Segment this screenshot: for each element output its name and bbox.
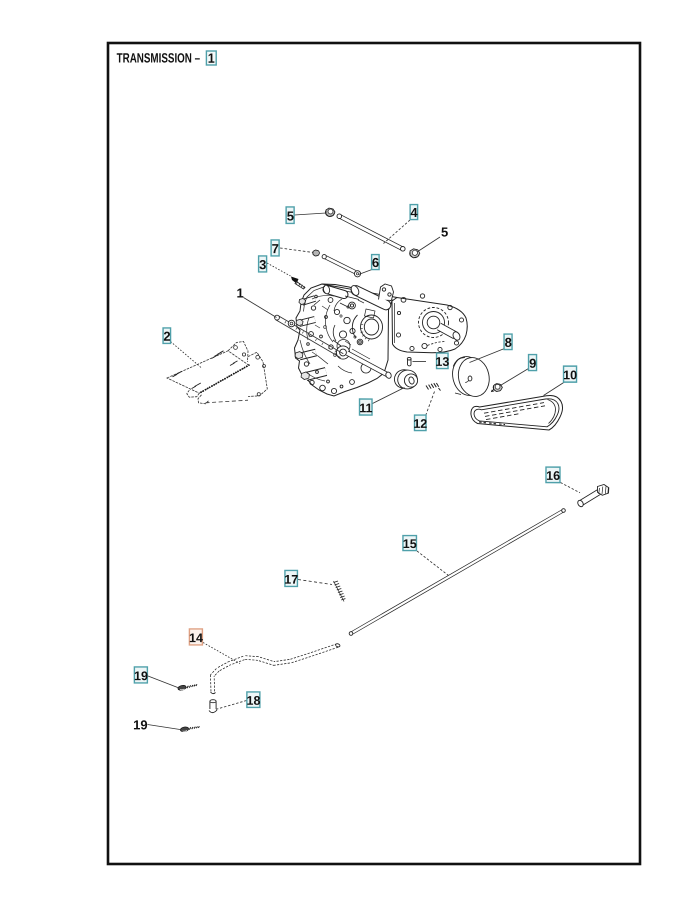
svg-text:12: 12 [413, 417, 427, 431]
svg-text:5: 5 [287, 208, 294, 223]
svg-text:19: 19 [134, 669, 148, 683]
svg-text:19: 19 [133, 717, 147, 732]
svg-text:3: 3 [259, 257, 266, 272]
svg-text:14: 14 [189, 631, 203, 645]
svg-text:17: 17 [284, 573, 298, 587]
svg-text:15: 15 [403, 537, 417, 551]
svg-text:1: 1 [208, 51, 215, 66]
svg-text:13: 13 [435, 355, 449, 369]
svg-text:8: 8 [505, 335, 512, 350]
svg-text:10: 10 [563, 368, 577, 382]
svg-text:6: 6 [372, 255, 379, 270]
svg-text:5: 5 [441, 225, 448, 240]
svg-text:4: 4 [410, 205, 418, 220]
svg-text:16: 16 [546, 469, 560, 483]
svg-text:2: 2 [163, 329, 170, 344]
svg-text:7: 7 [272, 241, 279, 256]
svg-text:11: 11 [359, 401, 372, 415]
svg-text:18: 18 [247, 694, 261, 708]
svg-text:9: 9 [529, 356, 536, 371]
svg-text:TRANSMISSION –: TRANSMISSION – [117, 51, 201, 66]
svg-text:1: 1 [236, 285, 243, 300]
